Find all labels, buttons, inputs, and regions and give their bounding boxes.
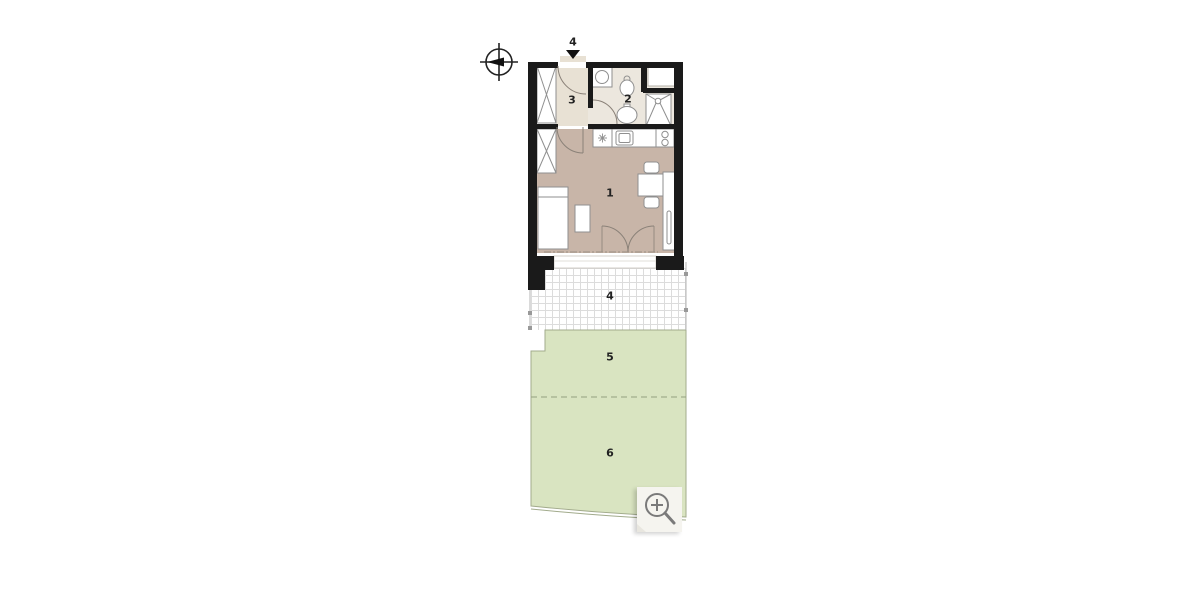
zoom-button[interactable]	[637, 487, 682, 532]
radiator	[663, 172, 675, 250]
side-table	[575, 205, 590, 232]
room-label-hallway: 3	[568, 94, 576, 107]
entrance-marker-label: 4	[569, 36, 577, 49]
shower	[646, 94, 671, 126]
floorplan-page: 1 2 3 4 5 6 4	[0, 0, 1200, 600]
room-label-living: 1	[606, 187, 614, 200]
room-label-terrace: 4	[606, 290, 614, 303]
room-label-bathroom: 2	[624, 93, 632, 106]
hall-wardrobe	[537, 66, 556, 123]
washing-machine	[592, 67, 612, 87]
room-label-garden-5: 5	[606, 351, 614, 364]
cooktop	[656, 129, 674, 147]
north-compass-icon	[480, 43, 518, 81]
magnifying-glass-plus-icon	[637, 487, 682, 532]
kitchen-counter	[593, 129, 674, 147]
living-wardrobe	[537, 129, 556, 173]
bed	[538, 187, 568, 249]
floorplan-drawing	[0, 0, 1200, 600]
room-label-garden-6: 6	[606, 447, 614, 460]
door-threshold	[554, 256, 656, 268]
